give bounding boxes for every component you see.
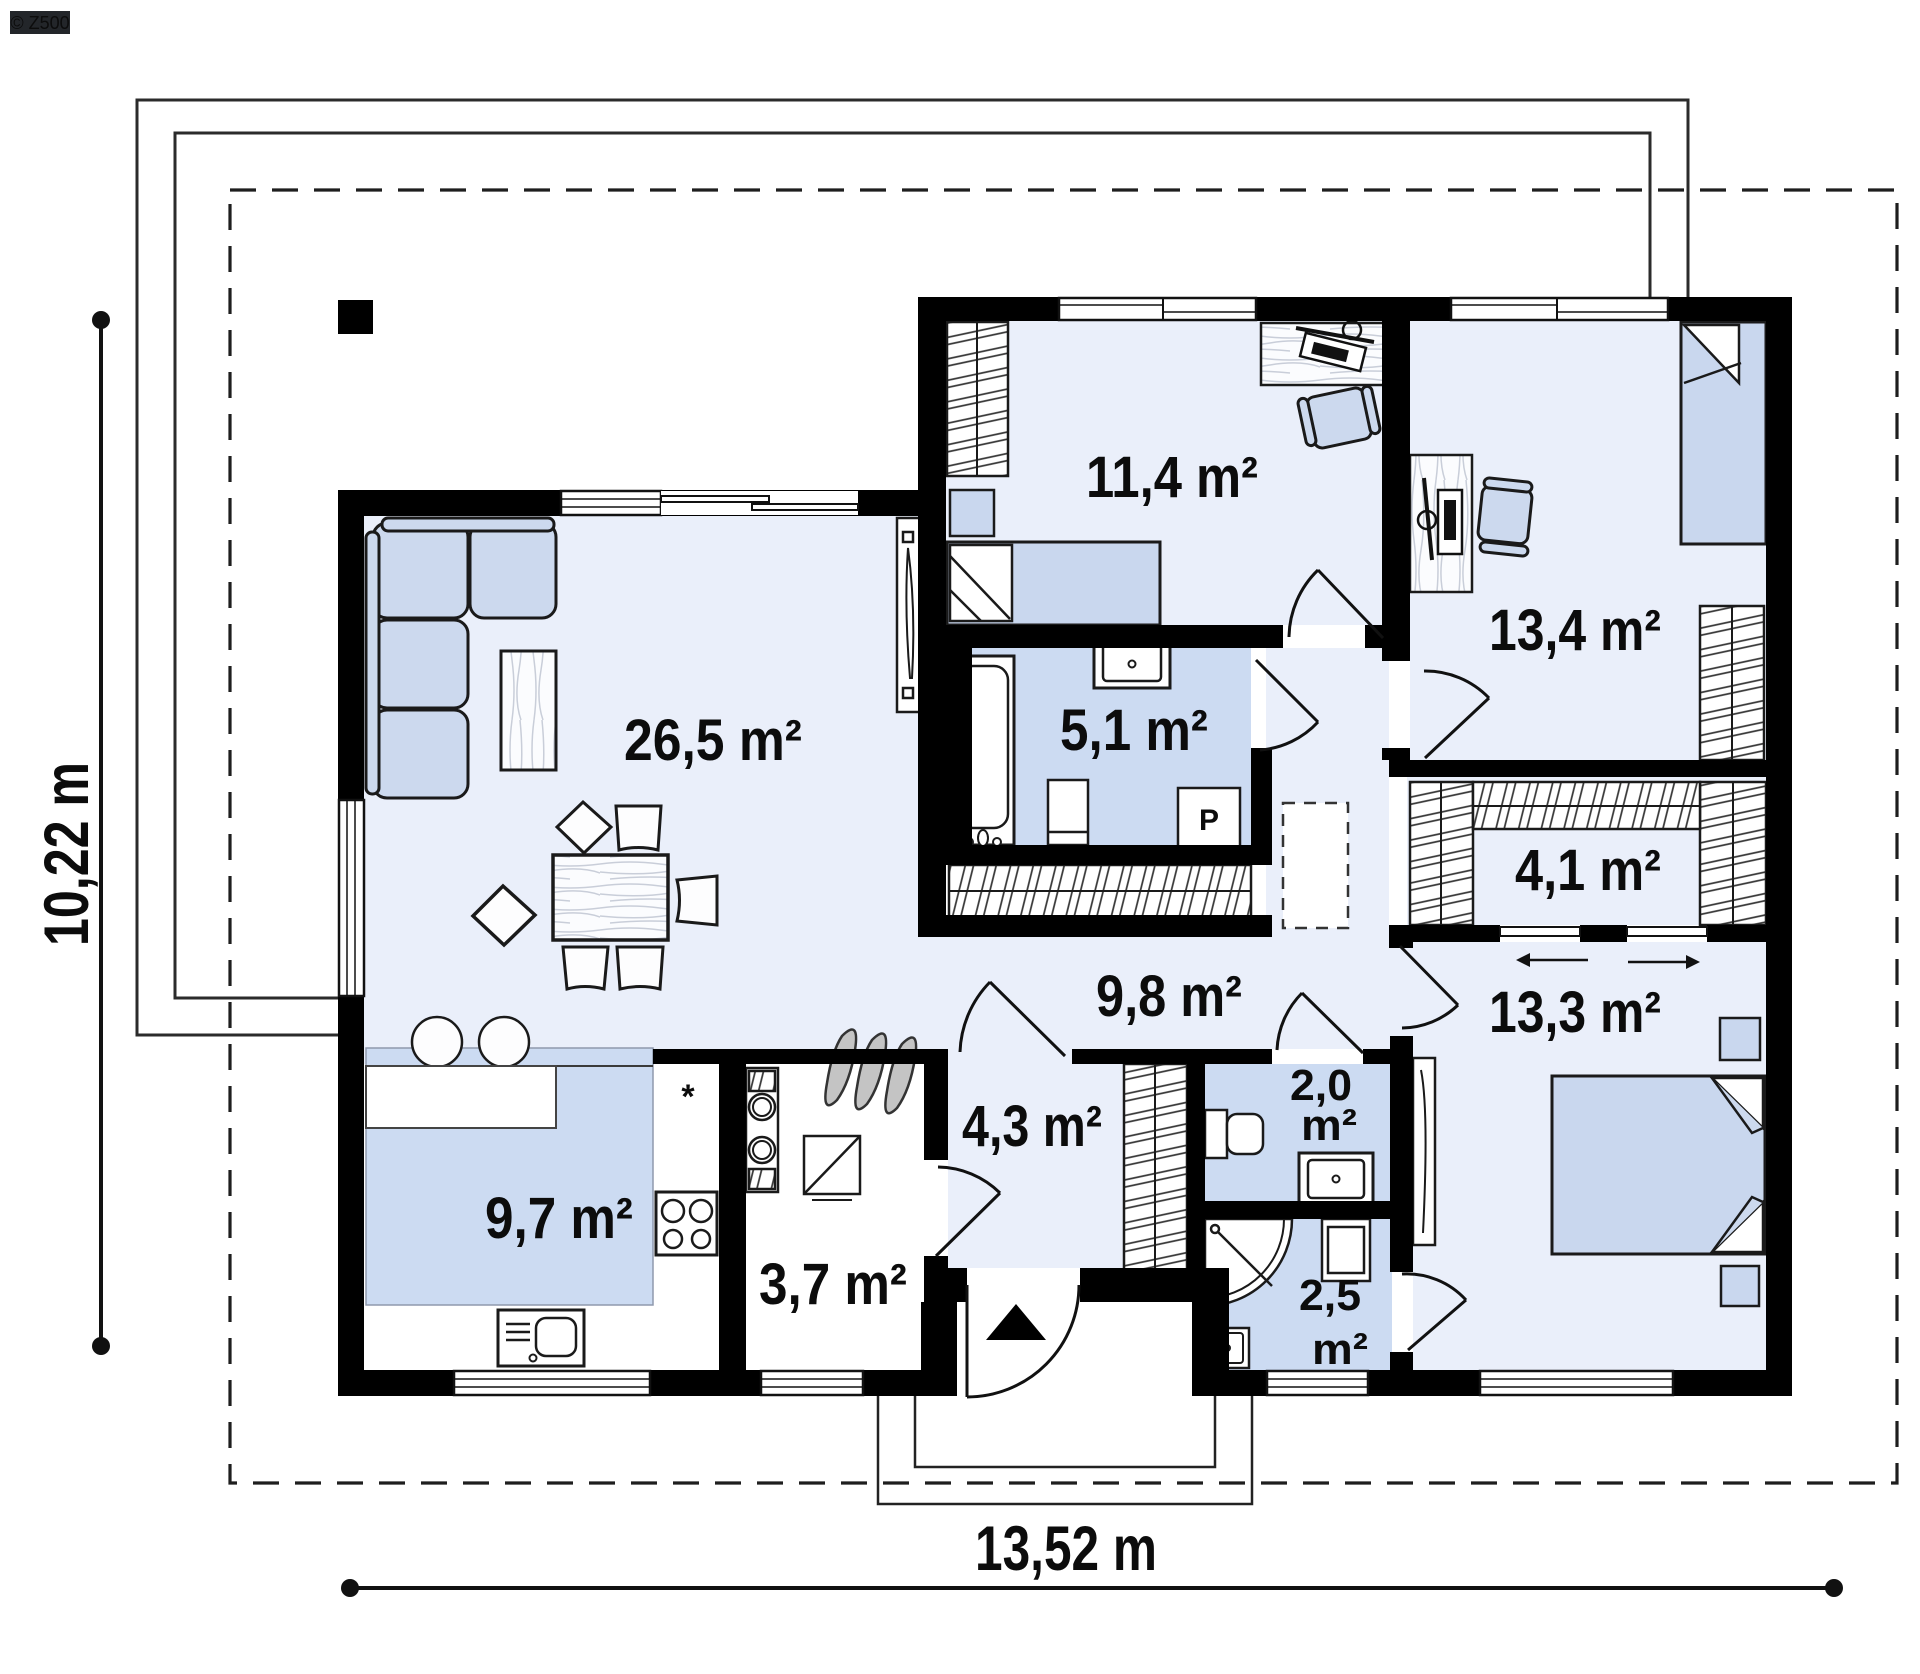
svg-text:9,8 m²: 9,8 m² xyxy=(1096,964,1242,1029)
svg-text:m²: m² xyxy=(1312,1325,1368,1374)
svg-text:10,22 m: 10,22 m xyxy=(32,762,102,946)
svg-text:13,52 m: 13,52 m xyxy=(975,1514,1157,1584)
svg-text:13,4 m²: 13,4 m² xyxy=(1489,598,1661,663)
svg-text:4,3 m²: 4,3 m² xyxy=(962,1094,1102,1159)
svg-text:P: P xyxy=(1199,804,1219,837)
svg-text:26,5 m²: 26,5 m² xyxy=(624,708,802,773)
svg-text:5,1 m²: 5,1 m² xyxy=(1060,698,1208,763)
svg-text:© Z500: © Z500 xyxy=(10,13,69,33)
svg-text:9,7 m²: 9,7 m² xyxy=(485,1186,633,1251)
svg-text:4,1 m²: 4,1 m² xyxy=(1515,838,1661,903)
svg-text:13,3 m²: 13,3 m² xyxy=(1489,980,1661,1045)
svg-text:m²: m² xyxy=(1301,1101,1357,1150)
svg-text:11,4 m²: 11,4 m² xyxy=(1086,445,1258,510)
svg-text:*: * xyxy=(681,1078,695,1116)
svg-text:3,7 m²: 3,7 m² xyxy=(759,1252,907,1317)
svg-text:2,5: 2,5 xyxy=(1299,1271,1361,1320)
